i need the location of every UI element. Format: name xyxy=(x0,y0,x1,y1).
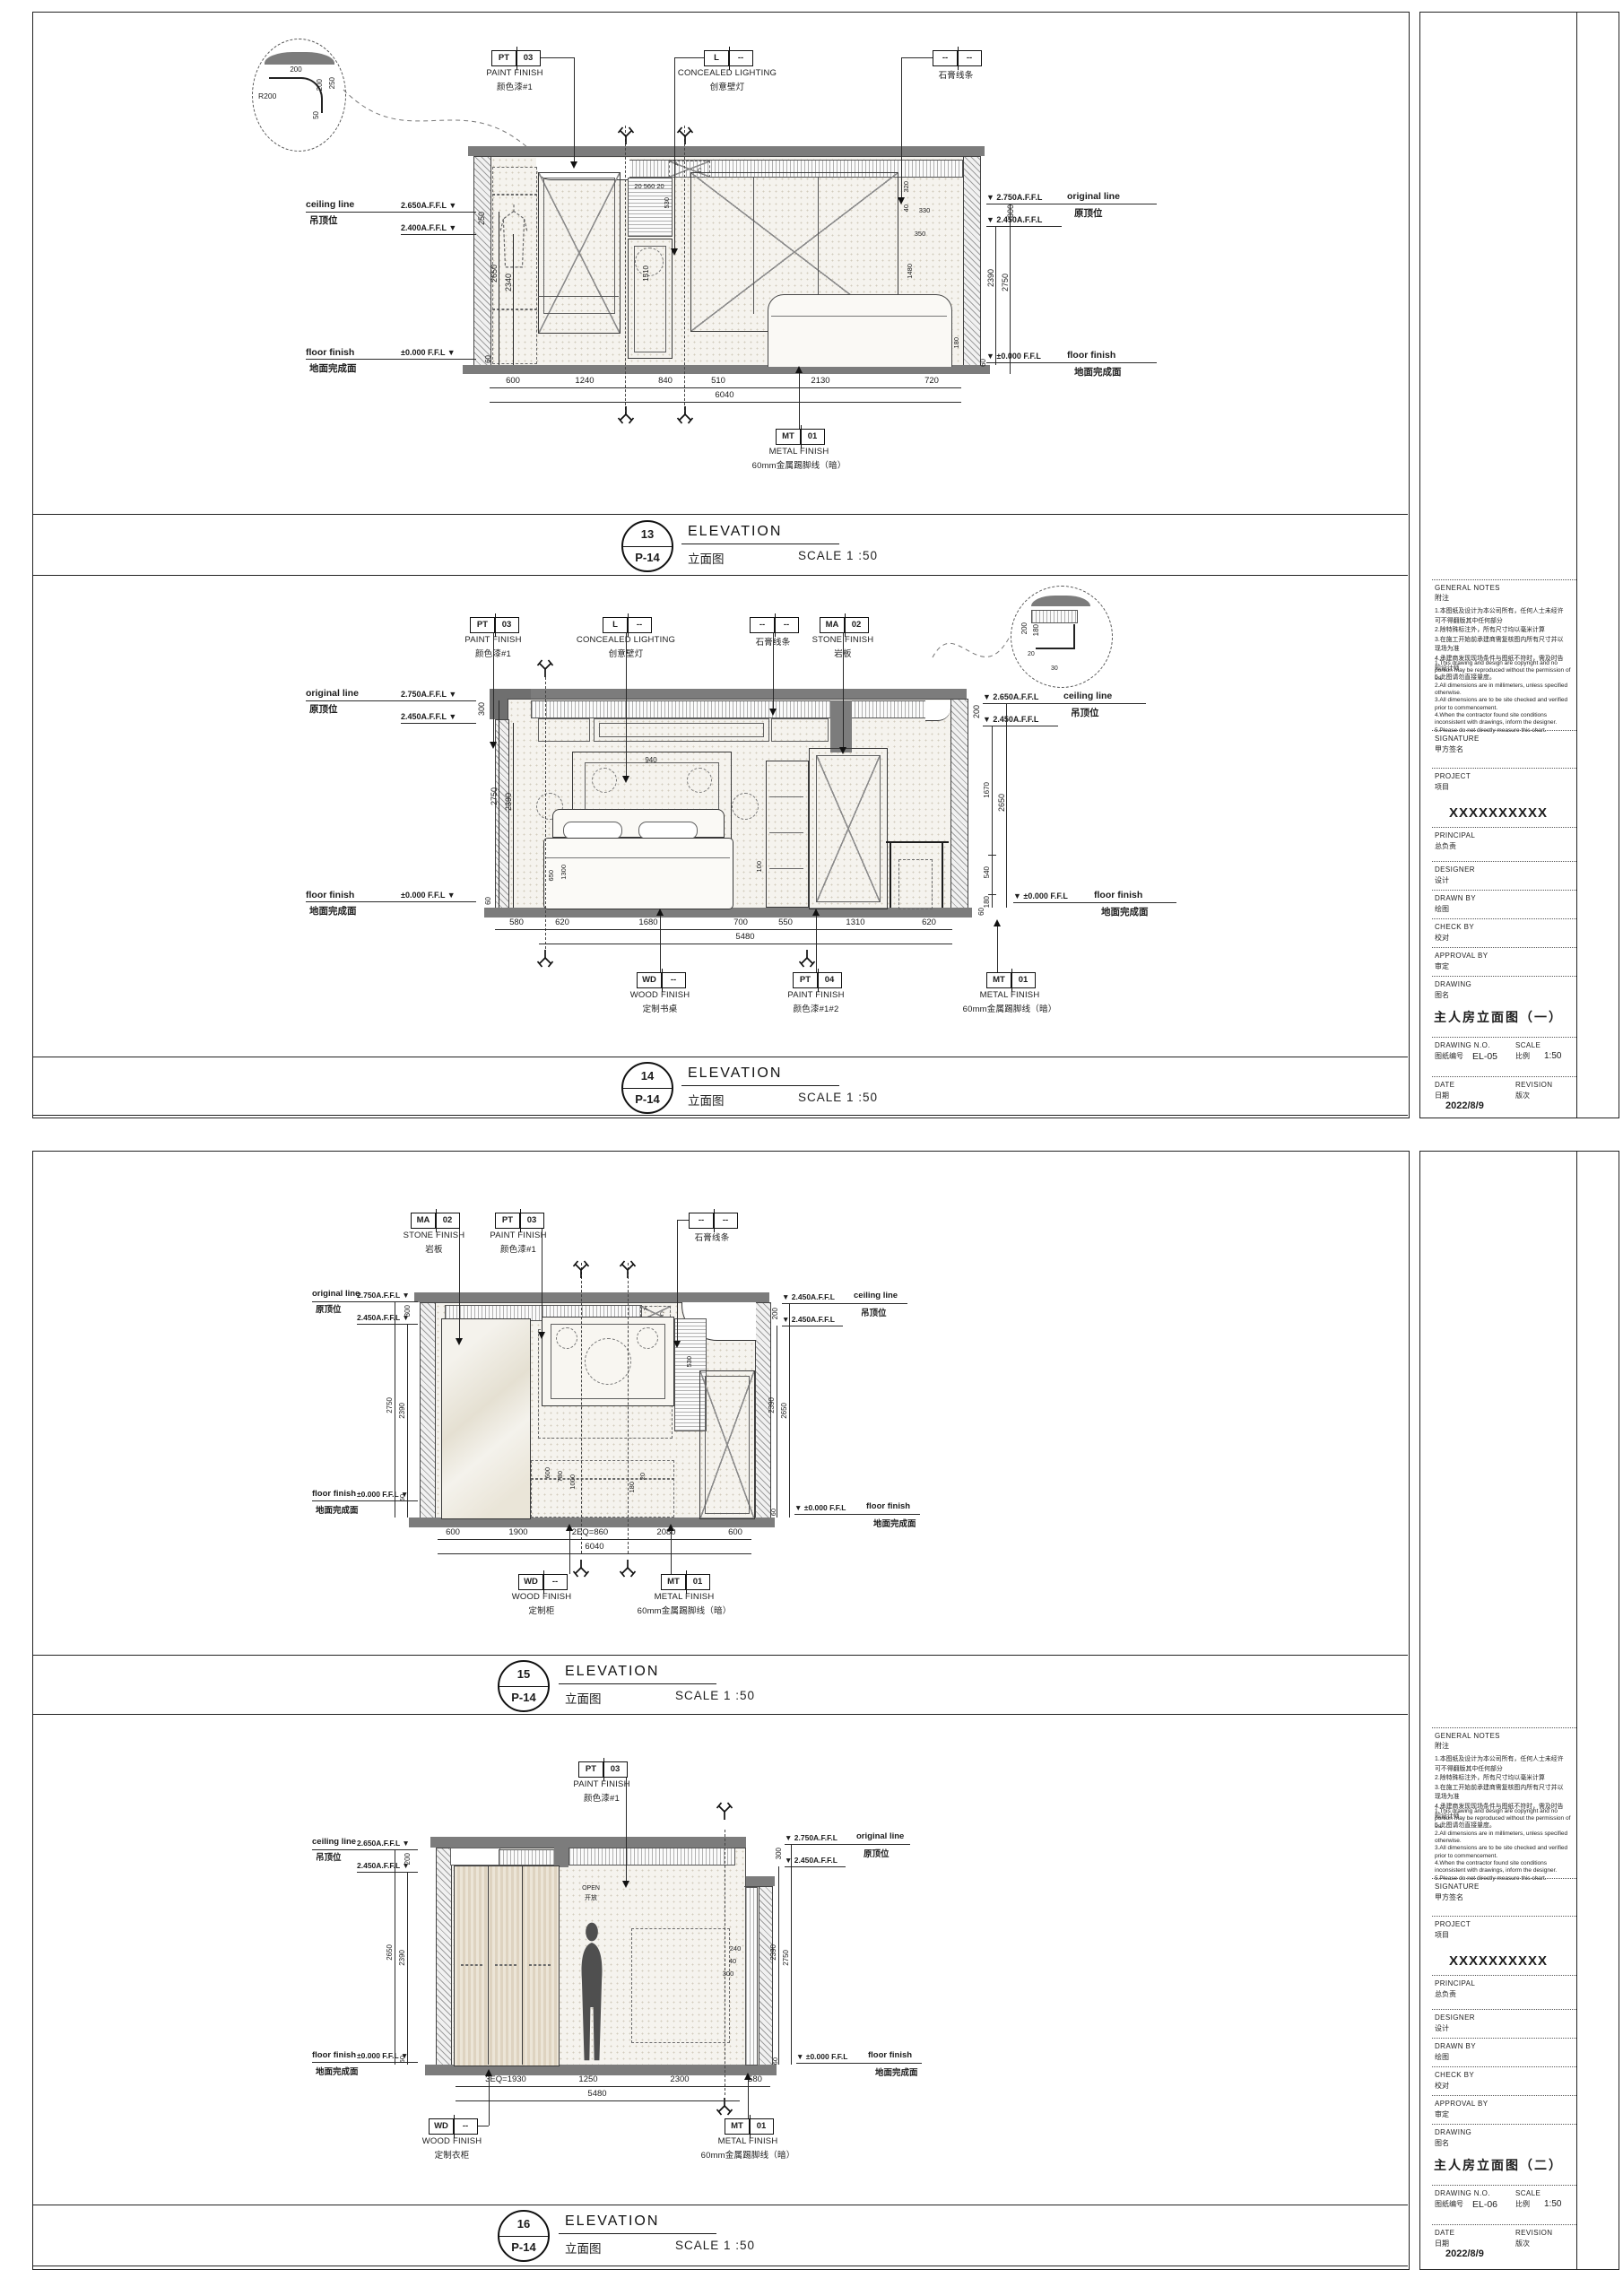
callout-paint-finish-2: PT04 xyxy=(793,972,842,988)
wall-hatch-right xyxy=(950,699,968,909)
inner-dim: 350 xyxy=(915,230,926,238)
original-line-label-zh: 原顶位 xyxy=(864,1847,890,1859)
callout-num: -- xyxy=(543,1575,567,1589)
callout-metal-finish: MT01 xyxy=(725,2118,774,2135)
detail-dim: 250 xyxy=(328,77,336,89)
shelf-niche xyxy=(766,761,809,908)
level-line xyxy=(983,703,1146,704)
level-line xyxy=(782,1326,843,1326)
separator xyxy=(1432,827,1576,828)
ceiling-slab xyxy=(468,146,985,156)
callout-concealed-lighting: L-- xyxy=(603,617,652,633)
door-leaf xyxy=(816,755,881,902)
leader xyxy=(997,924,998,972)
inner-dim: 180 xyxy=(628,1482,636,1493)
project-label-en: PROJECT xyxy=(1435,1920,1471,1928)
shelf xyxy=(769,796,803,797)
general-notes-en: 1.This drawing and design are copyright … xyxy=(1435,660,1571,735)
dim-line xyxy=(456,2100,740,2101)
floor-label-en: floor finish xyxy=(306,890,354,900)
ceiling-line-label-zh: 吊顶位 xyxy=(309,213,338,227)
floor-gap-dim: 60 xyxy=(977,908,985,916)
separator xyxy=(1432,730,1576,731)
date-label-zh: 日期 xyxy=(1435,1091,1449,1100)
callout-code: PT xyxy=(496,1213,520,1228)
wardrobe-door-joint xyxy=(522,1865,523,2065)
callout-label-en: WOOD FINISH xyxy=(512,1592,572,1602)
height-dim: 2750 xyxy=(386,1397,394,1413)
height-dim: 540 xyxy=(983,866,991,878)
dim-line xyxy=(992,726,993,908)
gap-dim: 200 xyxy=(972,705,981,718)
dim: 2130 xyxy=(811,376,829,386)
dim-total: 5480 xyxy=(587,2089,606,2099)
title-bubble: 16P-14 xyxy=(498,2210,550,2262)
callout-label-zh: 颜色漆#1#2 xyxy=(793,1002,838,1014)
shelf xyxy=(769,832,803,833)
original-line-label-en: original line xyxy=(1067,191,1120,202)
leader xyxy=(677,1220,678,1341)
leader-arrow xyxy=(456,1338,463,1349)
callout-num: 02 xyxy=(436,1213,459,1228)
dim-line xyxy=(490,387,961,388)
dim-line xyxy=(789,1303,790,1518)
height-dim: 2390 xyxy=(768,1397,776,1413)
floor-label-zh: 地面完成面 xyxy=(309,361,357,375)
scale-label-zh: 比例 xyxy=(1515,2199,1530,2209)
level-value: ▼ 2.750A.F.F.L xyxy=(986,193,1042,202)
titleblock-sheet1: GENERAL NOTES 附注 1.本图纸及设计为本公司所有，任何人士未经许可… xyxy=(1419,12,1619,1118)
inner-dim: 530 xyxy=(663,197,671,209)
dim-line xyxy=(495,929,952,930)
separator xyxy=(1432,2038,1576,2039)
dim-line xyxy=(395,1849,395,2065)
general-notes-label-zh: 附注 xyxy=(1435,593,1449,603)
gap-dim: 250 xyxy=(477,212,486,225)
callout-label-zh: 颜色漆#1 xyxy=(500,1242,536,1255)
light-switch-icon xyxy=(572,1259,590,1279)
project-label-zh: 项目 xyxy=(1435,782,1449,792)
dim-total: 5480 xyxy=(735,932,754,942)
callout-num: 01 xyxy=(1011,973,1035,987)
titleblock-inner-border xyxy=(1576,1152,1577,2269)
gap-dim: 300 xyxy=(1006,204,1015,218)
callout-gypsum-line: ---- xyxy=(689,1213,738,1229)
person-silhouette xyxy=(575,1921,609,2065)
callout-num: 03 xyxy=(495,618,518,632)
level-line xyxy=(357,1324,418,1325)
title-en: ELEVATION xyxy=(688,524,782,540)
dim-line xyxy=(513,723,514,908)
floor-label-zh: 地面完成面 xyxy=(316,1503,359,1516)
height-dim: 2340 xyxy=(504,274,513,291)
floor-gap-dim: 60 xyxy=(771,2057,779,2065)
revision-label-zh: 版次 xyxy=(1515,1091,1530,1100)
height-dim: 2390 xyxy=(769,1944,777,1961)
original-line-label-zh: 原顶位 xyxy=(316,1302,342,1315)
leader xyxy=(626,1777,627,1883)
leader xyxy=(901,57,902,197)
leader-arrow xyxy=(570,161,577,172)
callout-code: PT xyxy=(492,51,516,65)
detail-dim: 200 xyxy=(316,79,324,91)
level-value: 2.450A.F.F.L ▼ xyxy=(357,1861,410,1870)
title-en: ELEVATION xyxy=(565,1664,659,1680)
floor-gap-dim: 60 xyxy=(398,2056,406,2063)
dim: 620 xyxy=(922,918,936,927)
section-line xyxy=(581,1263,582,1553)
ceiling-line-label-en: ceiling line xyxy=(854,1291,898,1300)
wardrobe-handle xyxy=(461,1964,482,1966)
drawing-label-en: DRAWING xyxy=(1435,2128,1471,2136)
floor-gap-dim: 60 xyxy=(979,359,987,367)
level-line xyxy=(401,723,476,724)
callout-label-zh: 颜色漆#1 xyxy=(584,1791,620,1804)
separator xyxy=(1432,2224,1576,2225)
height-dim: 180 xyxy=(983,896,991,908)
callout-num: -- xyxy=(714,1213,737,1228)
dim-line xyxy=(791,1844,792,2065)
light-switch-icon xyxy=(798,949,816,969)
floor-level: ±0.000 F.F.L ▼ xyxy=(401,891,456,900)
callout-label-en: PAINT FINISH xyxy=(787,990,844,1000)
ac-grille-letter-a: A xyxy=(644,1307,647,1313)
callout-label-en: METAL FINISH xyxy=(718,2136,778,2146)
floor-line xyxy=(306,359,476,360)
section-line xyxy=(625,126,626,414)
callout-gypsum-line: ---- xyxy=(933,50,982,66)
floor-level: ▼ ±0.000 F.F.L xyxy=(794,1503,846,1512)
original-line-label-en: original line xyxy=(306,688,359,699)
floor-label-en: floor finish xyxy=(866,1501,910,1511)
dim-line xyxy=(490,402,961,403)
check-by-label-zh: 校对 xyxy=(1435,933,1449,943)
inner-dim: 1300 xyxy=(560,865,568,880)
callout-paint-finish: PT03 xyxy=(578,1761,628,1778)
detail-dim: 50 xyxy=(312,111,320,119)
drawing-label-zh: 图名 xyxy=(1435,2138,1449,2148)
dim: 1240 xyxy=(575,376,594,386)
callout-metal-finish: MT01 xyxy=(776,429,825,445)
leader-arrow xyxy=(769,709,777,719)
title-zh: 立面图 xyxy=(688,549,725,567)
callout-num: 02 xyxy=(845,618,868,632)
inner-dim: 780 xyxy=(556,1471,564,1483)
check-by-label-en: CHECK BY xyxy=(1435,2071,1474,2079)
hanging-clothes-icon xyxy=(499,203,529,269)
floor-gap-dim: 60 xyxy=(484,355,492,363)
light-switch-icon xyxy=(619,1259,637,1279)
callout-label-zh: 60mm金属踢脚线（暗） xyxy=(638,1604,732,1616)
title-scale: SCALE 1 :50 xyxy=(798,549,878,562)
leader xyxy=(542,1228,542,1334)
level-line xyxy=(782,1303,907,1304)
callout-label-en: WOOD FINISH xyxy=(630,990,690,1000)
detail-step-profile xyxy=(1036,624,1075,649)
leader xyxy=(901,57,933,58)
separator xyxy=(1432,1878,1576,1879)
drawing-label-en: DRAWING xyxy=(1435,980,1471,988)
dim-line xyxy=(456,2086,770,2087)
title-rule xyxy=(32,514,1408,515)
level-line xyxy=(401,234,476,235)
dim-line xyxy=(395,1301,395,1518)
approval-by-label-zh: 审定 xyxy=(1435,961,1449,971)
wall-hatch-right xyxy=(963,156,981,367)
callout-label-zh: 定制书桌 xyxy=(643,1002,678,1014)
height-dim: 1670 xyxy=(983,782,991,798)
revision-label-en: REVISION xyxy=(1515,1081,1552,1089)
floor-line xyxy=(794,1514,920,1515)
floor-gap-dim: 60 xyxy=(398,1494,406,1501)
drawn-by-label-en: DRAWN BY xyxy=(1435,2042,1476,2050)
dim: 1680 xyxy=(638,918,657,927)
drawn-by-label-zh: 绘图 xyxy=(1435,904,1449,914)
scale-label-zh: 比例 xyxy=(1515,1051,1530,1061)
separator xyxy=(1432,2095,1576,2096)
callout-label-zh: 60mm金属踢脚线（暗） xyxy=(701,2148,795,2161)
title-rule xyxy=(32,1057,1408,1057)
callout-num: -- xyxy=(958,51,981,65)
callout-code: MT xyxy=(662,1575,686,1589)
leader xyxy=(574,57,575,161)
callout-num: 03 xyxy=(516,51,540,65)
detail-cove-profile xyxy=(269,77,323,113)
detail-slab xyxy=(265,52,334,65)
elevation-number: 15 xyxy=(499,1662,548,1687)
callout-code: PT xyxy=(579,1762,603,1777)
wall-hatch-left xyxy=(495,719,509,909)
floor-level: ▼ ±0.000 F.F.L xyxy=(986,352,1041,361)
principal-label-en: PRINCIPAL xyxy=(1435,831,1475,839)
callout-concealed-lighting: L-- xyxy=(704,50,753,66)
inner-dim: 1480 xyxy=(906,264,914,279)
light-switch-icon xyxy=(716,1801,733,1821)
general-notes-en: 1.This drawing and design are copyright … xyxy=(1435,1808,1571,1883)
height-dim: 2390 xyxy=(398,1403,406,1419)
pillow xyxy=(638,822,698,839)
drawing-label-zh: 图名 xyxy=(1435,990,1449,1000)
drawn-by-label-en: DRAWN BY xyxy=(1435,894,1476,902)
designer-label-en: DESIGNER xyxy=(1435,865,1475,874)
title-underline xyxy=(559,1683,716,1684)
separator xyxy=(1432,2066,1576,2067)
wall-hatch-right xyxy=(759,1886,773,2066)
level-value: 2.650A.F.F.L ▼ xyxy=(401,201,456,210)
leader-arrow xyxy=(839,747,846,758)
ceiling-slab-low xyxy=(744,1876,775,1886)
callout-code: MT xyxy=(777,430,801,444)
dim: 550 xyxy=(778,918,793,927)
callout-metal-finish: MT01 xyxy=(986,972,1036,988)
title-en: ELEVATION xyxy=(688,1065,782,1082)
dim-line xyxy=(438,1539,751,1540)
callout-num: 01 xyxy=(750,2119,773,2134)
ceiling-line-label-en: ceiling line xyxy=(306,199,354,210)
leader xyxy=(459,1228,460,1340)
callout-label-en: PAINT FINISH xyxy=(573,1779,629,1789)
mirror-strip xyxy=(745,1887,758,2066)
inner-dim: 530 xyxy=(685,1356,693,1368)
check-by-label-zh: 校对 xyxy=(1435,2081,1449,2091)
inner-dim: 600 xyxy=(543,1467,551,1479)
separator xyxy=(1432,918,1576,919)
bench-line xyxy=(531,1478,674,1480)
title-bubble: 14P-14 xyxy=(621,1062,673,1114)
date-label-zh: 日期 xyxy=(1435,2239,1449,2248)
inner-dim: 330 xyxy=(919,206,931,214)
callout-code: L xyxy=(705,51,729,65)
leader xyxy=(569,1528,570,1574)
floor-line xyxy=(1013,902,1176,903)
drawing-no-label-en: DRAWING N.O. xyxy=(1435,2189,1490,2197)
callout-label-en: PAINT FINISH xyxy=(490,1231,546,1240)
crown-panel-inner xyxy=(599,723,764,737)
callout-label-zh: 石膏线条 xyxy=(939,68,974,81)
elevation-number: 13 xyxy=(623,522,672,547)
wardrobe xyxy=(454,1865,560,2066)
callout-label-en: STONE FINISH xyxy=(404,1231,465,1240)
height-dim: 2750 xyxy=(782,1950,790,1966)
leader xyxy=(677,1220,689,1221)
wall-hatch-left xyxy=(436,1848,452,2066)
level-line xyxy=(983,726,1058,726)
callout-stone-finish: MA02 xyxy=(411,1213,460,1229)
dim: 600 xyxy=(728,1527,742,1537)
separator xyxy=(1432,1076,1576,1077)
original-line-label-zh: 原顶位 xyxy=(309,702,338,716)
title-scale: SCALE 1 :50 xyxy=(675,2239,755,2252)
callout-label-zh: 石膏线条 xyxy=(695,1231,730,1243)
project-label-zh: 项目 xyxy=(1435,1930,1449,1940)
callout-gypsum-line: ---- xyxy=(750,617,799,633)
leader-arrow xyxy=(538,1332,545,1343)
ceiling-step-box xyxy=(450,1848,500,1865)
dim: 620 xyxy=(555,918,569,927)
callout-label-zh: 定制柜 xyxy=(528,1604,554,1616)
elevation-number: 16 xyxy=(499,2212,548,2237)
sheet-ref: P-14 xyxy=(623,547,672,569)
leader xyxy=(816,913,817,972)
callout-code: PT xyxy=(471,618,495,632)
ceiling-line-label-zh: 吊顶位 xyxy=(316,1850,342,1863)
leader-arrow xyxy=(994,916,1001,926)
approval-by-label-en: APPROVAL BY xyxy=(1435,952,1488,960)
dim-line xyxy=(407,1872,408,2065)
level-value: ▼ 2.750A.F.F.L xyxy=(785,1833,838,1842)
designer-label-zh: 设计 xyxy=(1435,2023,1449,2033)
approval-by-label-zh: 审定 xyxy=(1435,2109,1449,2119)
floor-label-zh: 地面完成面 xyxy=(309,904,357,918)
separator xyxy=(1432,976,1576,977)
general-notes-label-en: GENERAL NOTES xyxy=(1435,584,1500,592)
title-underline xyxy=(559,2233,716,2234)
title-rule xyxy=(32,2266,1408,2266)
leader xyxy=(660,913,661,972)
height-dim: 2390 xyxy=(986,269,995,287)
level-value: 2.650A.F.F.L ▼ xyxy=(357,1839,410,1848)
stone-pier xyxy=(830,700,852,752)
callout-code: WD xyxy=(430,2119,454,2134)
signature-label-en: SIGNATURE xyxy=(1435,1883,1480,1891)
callout-num: -- xyxy=(775,618,798,632)
inner-dim: 40 xyxy=(729,1957,736,1965)
original-line-label-en: original line xyxy=(312,1289,360,1299)
leader-arrow xyxy=(812,905,820,916)
title-zh: 立面图 xyxy=(565,2239,602,2257)
gap-dim: 200 xyxy=(404,1853,412,1865)
dim-total: 6040 xyxy=(715,390,733,400)
height-dim: 2750 xyxy=(490,787,499,805)
ceiling-block xyxy=(554,1848,568,1867)
level-value: 2.750A.F.F.L ▼ xyxy=(401,690,456,699)
separator xyxy=(1432,1037,1576,1038)
drawing-no-value: EL-06 xyxy=(1472,2199,1497,2210)
drawing-no-label-en: DRAWING N.O. xyxy=(1435,1041,1490,1049)
dim: 600 xyxy=(506,376,520,386)
callout-code: MA xyxy=(820,618,845,632)
dim-line xyxy=(499,700,499,908)
title-underline xyxy=(681,544,839,544)
title-bubble: 13P-14 xyxy=(621,520,673,572)
medallion xyxy=(687,768,712,793)
light-switch-icon xyxy=(676,405,694,425)
leader-arrow xyxy=(566,1520,573,1531)
medallion xyxy=(637,1327,658,1349)
separator xyxy=(1432,1727,1576,1728)
floor-line xyxy=(986,362,1157,363)
shelf xyxy=(769,868,803,869)
detail-dim: 200 xyxy=(1020,622,1028,634)
title-scale: SCALE 1 :50 xyxy=(798,1091,878,1104)
bed-mattress xyxy=(543,838,733,909)
callout-num: -- xyxy=(628,618,651,632)
leader-arrow xyxy=(673,1341,681,1352)
callout-num: -- xyxy=(454,2119,477,2134)
leader-arrow xyxy=(656,905,664,916)
dim: 600 xyxy=(446,1527,460,1537)
callout-label-en: METAL FINISH xyxy=(655,1592,715,1602)
cove-moulding-band xyxy=(531,700,927,718)
sheet-ref: P-14 xyxy=(499,1687,548,1709)
desk-chair xyxy=(898,859,933,909)
dim-tick xyxy=(988,855,996,856)
callout-paint-finish: PT03 xyxy=(491,50,541,66)
ceiling-line-label-en: ceiling line xyxy=(312,1837,356,1847)
signature-label-zh: 甲方签名 xyxy=(1435,744,1463,754)
inner-dim: 320 xyxy=(902,181,910,193)
level-value: ▼ 2.450A.F.F.L xyxy=(782,1292,835,1301)
title-zh: 立面图 xyxy=(565,1689,602,1707)
level-value: 2.450A.F.F.L ▼ xyxy=(401,712,456,721)
drawing-no-label-zh: 图纸编号 xyxy=(1435,2199,1463,2209)
leader xyxy=(626,632,627,776)
light-switch-icon xyxy=(617,126,635,145)
callout-num: 03 xyxy=(520,1213,543,1228)
separator xyxy=(1432,947,1576,948)
window-mullion xyxy=(753,178,754,314)
floor-gap-dim: 60 xyxy=(484,897,492,905)
dim: 1250 xyxy=(578,2074,597,2084)
drawing-name: 主人房立面图（二） xyxy=(1420,2156,1576,2174)
leader-arrow xyxy=(744,2069,751,2080)
callout-code: MT xyxy=(987,973,1011,987)
callout-num: 01 xyxy=(686,1575,709,1589)
ceiling-line-label-zh: 吊顶位 xyxy=(861,1306,887,1318)
title-zh: 立面图 xyxy=(688,1091,725,1109)
callout-wood-finish: WD-- xyxy=(637,972,686,988)
title-rule xyxy=(32,1655,1408,1656)
